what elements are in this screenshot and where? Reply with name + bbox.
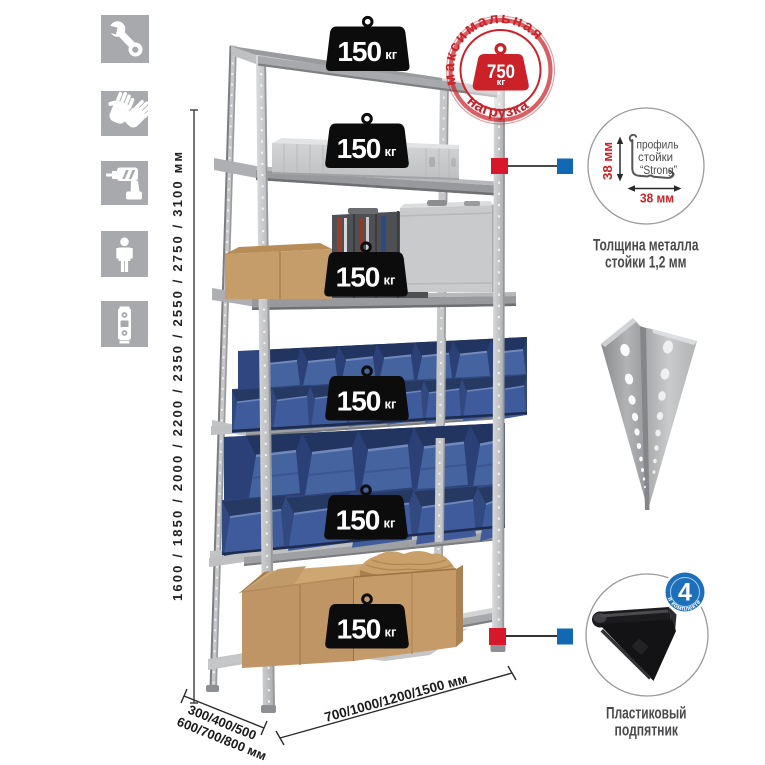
svg-text:“Strong”: “Strong” [640, 163, 677, 177]
svg-text:150: 150 [336, 262, 380, 293]
svg-text:38 мм: 38 мм [601, 142, 615, 180]
svg-text:1600 / 1850 / 2000 / 2200 / 23: 1600 / 1850 / 2000 / 2200 / 2350 / 2550 … [170, 152, 185, 601]
svg-text:кг: кг [384, 273, 397, 288]
svg-text:кг: кг [385, 625, 398, 640]
svg-text:Толщина металла: Толщина металла [593, 237, 699, 255]
svg-text:кг: кг [497, 77, 506, 88]
svg-text:подпятник: подпятник [615, 722, 679, 740]
svg-text:150: 150 [337, 386, 381, 417]
svg-text:38 мм: 38 мм [640, 192, 674, 206]
svg-text:стойки 1,2 мм: стойки 1,2 мм [605, 254, 687, 272]
svg-text:4: 4 [678, 579, 692, 607]
svg-text:кг: кг [384, 516, 397, 531]
svg-text:150: 150 [337, 133, 381, 164]
svg-text:кг: кг [385, 144, 398, 159]
svg-text:150: 150 [337, 36, 381, 67]
svg-text:Пластиковый: Пластиковый [606, 705, 687, 723]
svg-text:стойки: стойки [638, 150, 673, 164]
svg-text:150: 150 [336, 505, 380, 536]
svg-text:кг: кг [385, 397, 398, 412]
svg-text:150: 150 [337, 614, 381, 645]
svg-text:кг: кг [385, 47, 398, 62]
